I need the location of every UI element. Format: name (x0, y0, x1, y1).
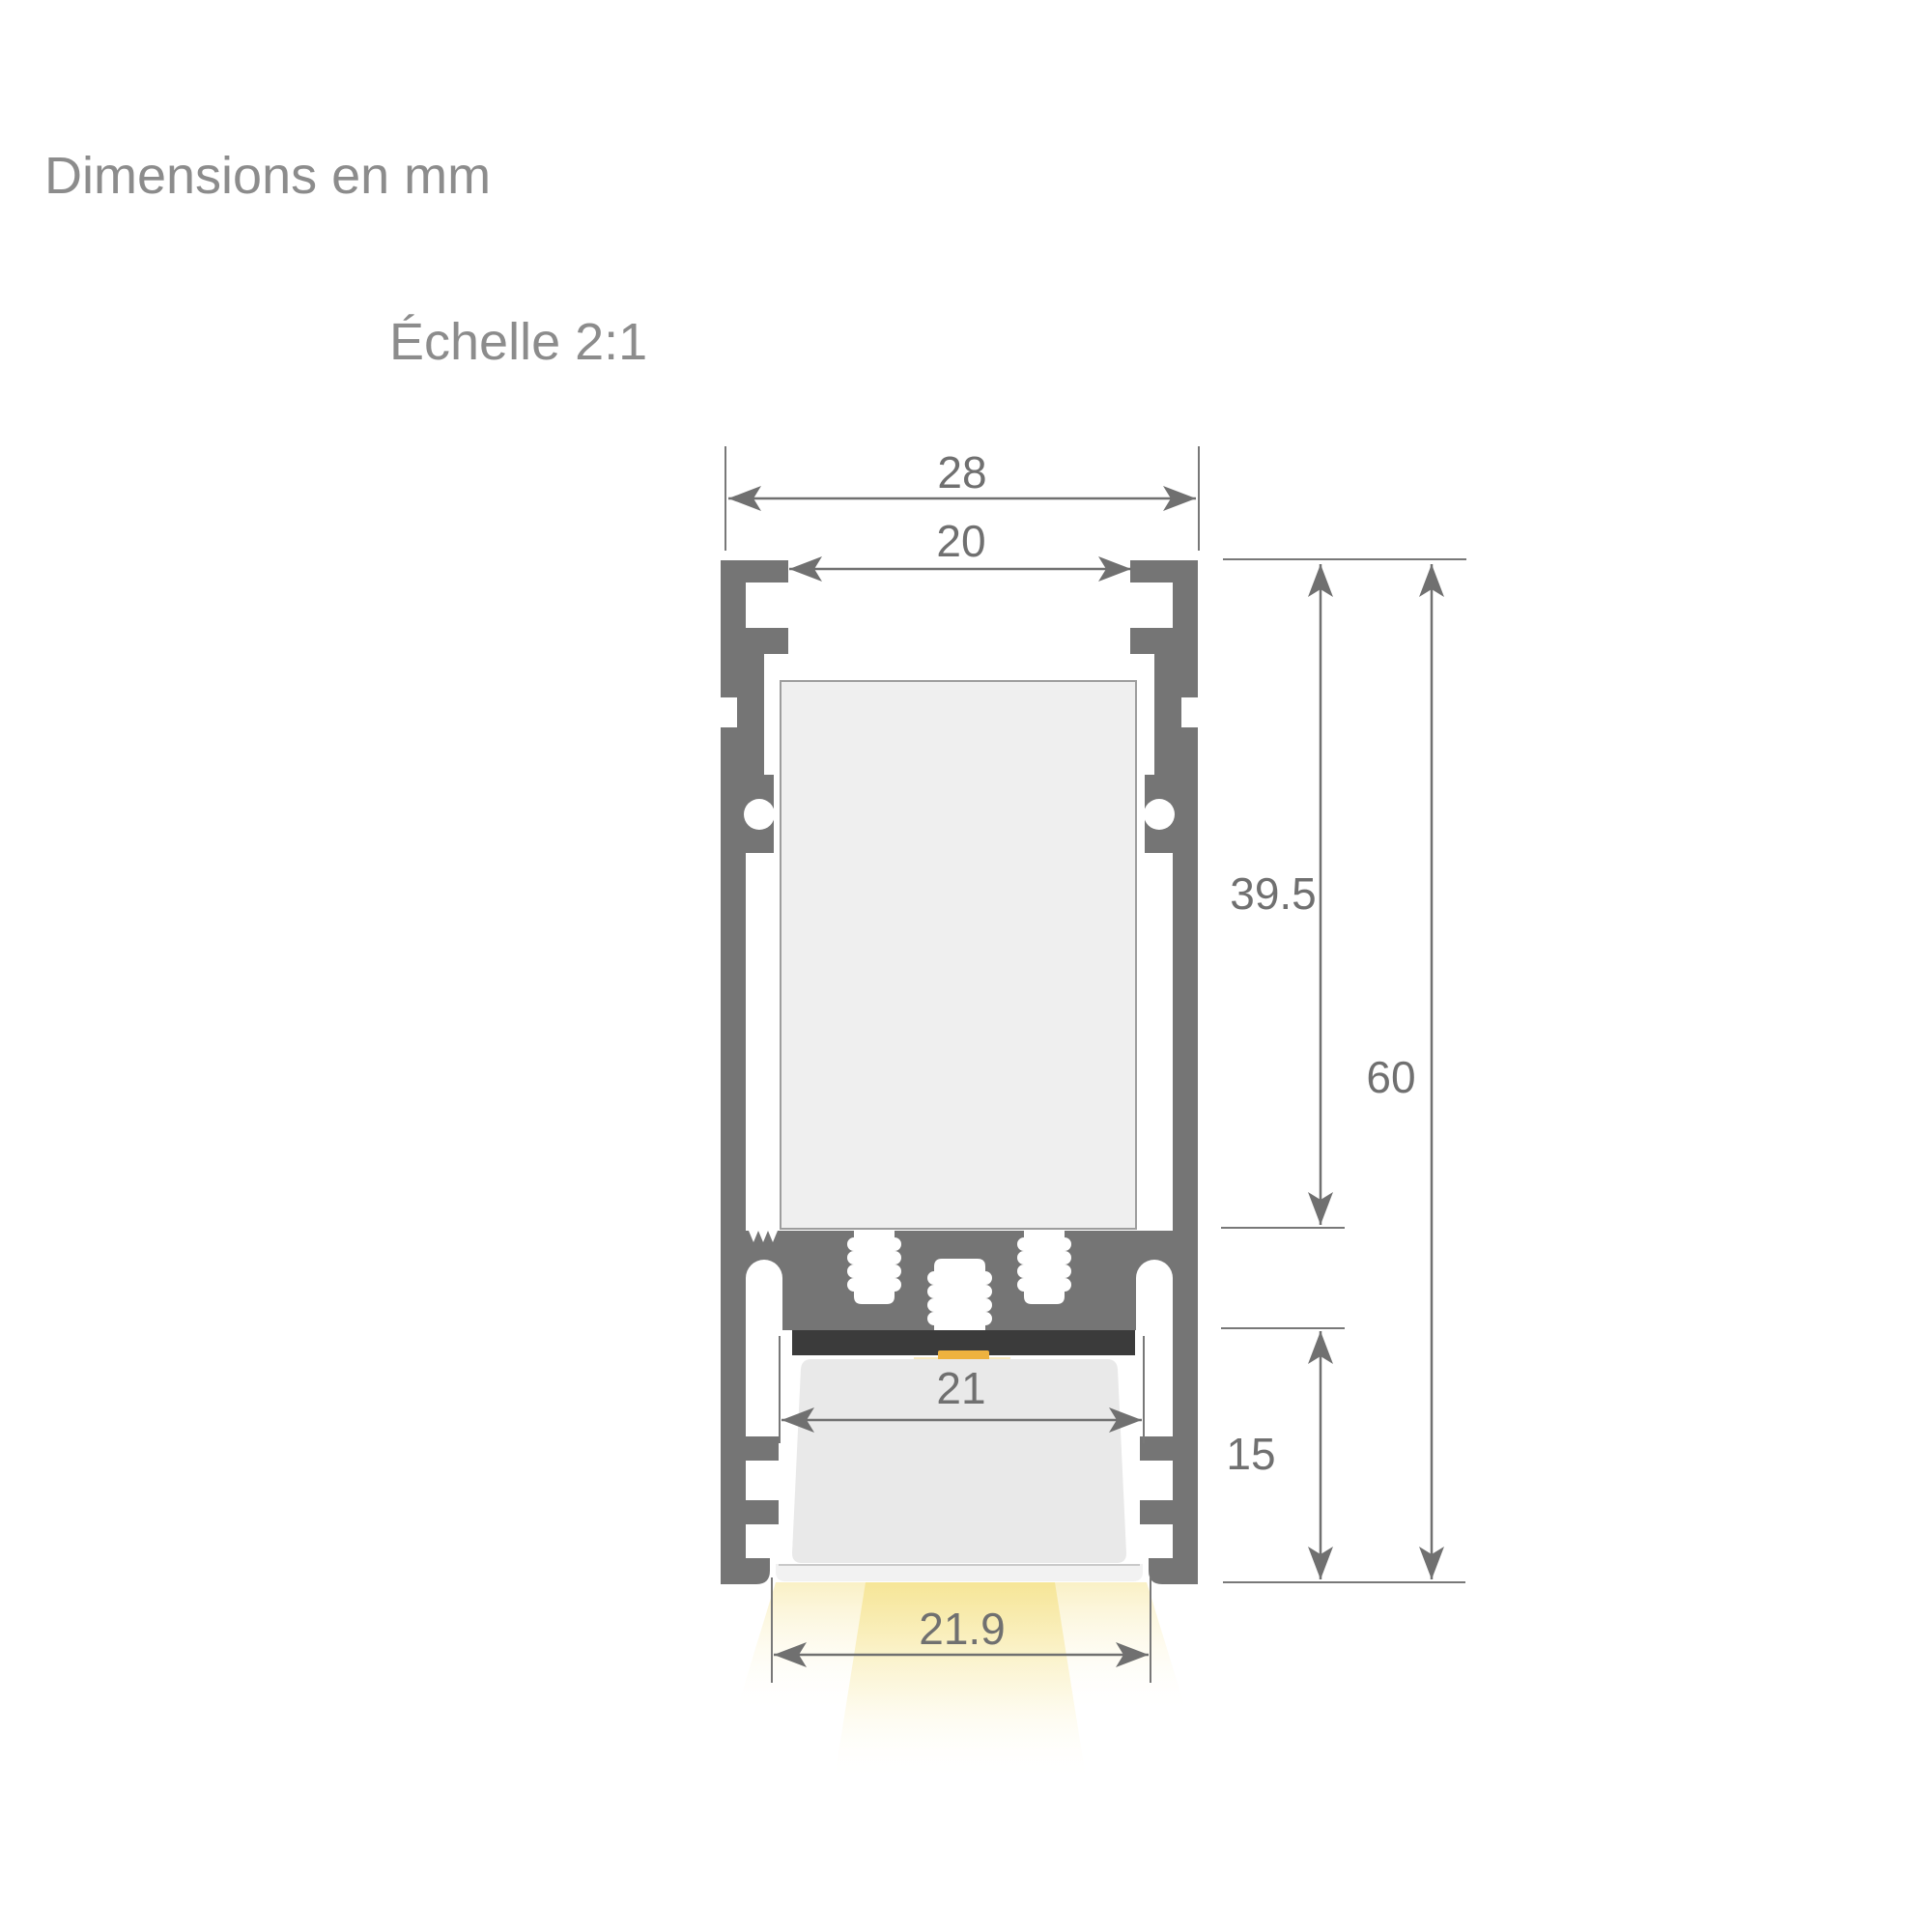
dim-label-20: 20 (936, 516, 985, 566)
dim-label-39-5: 39.5 (1230, 868, 1317, 919)
inner-cavity (781, 681, 1136, 1229)
web-slot-right (1136, 1260, 1173, 1331)
profile-drawing: Dimensions en mm Échelle 2:1 (0, 0, 1932, 1932)
dim-label-15: 15 (1226, 1429, 1275, 1479)
drawing-title: Dimensions en mm (44, 147, 491, 205)
web-serration-left (749, 1231, 778, 1242)
screw-channel-center (927, 1259, 992, 1331)
dim-label-21-9: 21.9 (919, 1604, 1006, 1654)
screw-hole-right (1144, 799, 1175, 830)
screw-hole-left (744, 799, 775, 830)
diffuser-lip (776, 1564, 1143, 1581)
web-slot-left (746, 1260, 782, 1331)
screw-channel-right (1017, 1231, 1071, 1304)
dim-label-21: 21 (936, 1363, 985, 1413)
screw-channel-left (847, 1231, 901, 1304)
dim-label-60: 60 (1366, 1052, 1415, 1102)
scale-label: Échelle 2:1 (389, 313, 647, 371)
dim-label-28: 28 (937, 447, 986, 497)
